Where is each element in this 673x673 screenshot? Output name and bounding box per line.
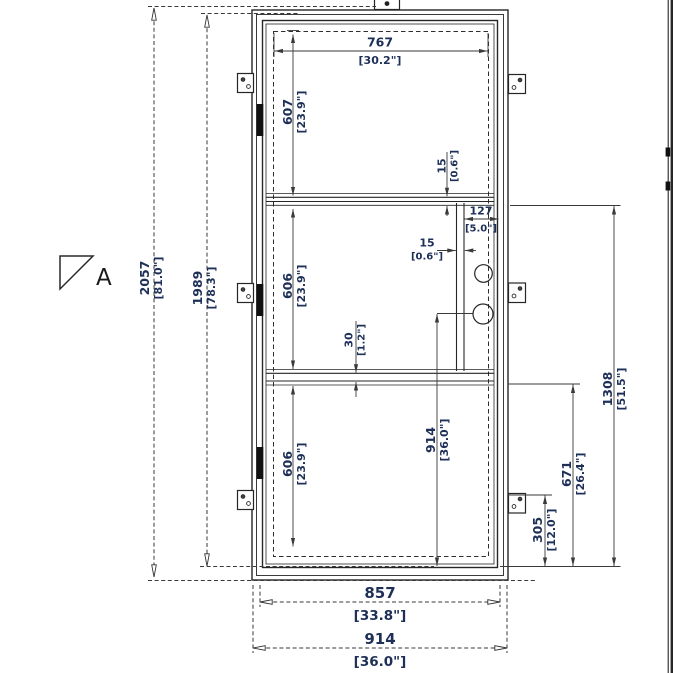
handle-zone-mm-label: 671 [559, 461, 574, 487]
dim-leaf-height: 1989 [78.3"] [190, 15, 218, 566]
glass-width-mm-label: 767 [367, 35, 393, 50]
anchor-plate-left-3 [238, 491, 254, 510]
dim-lock-channel-width: 15 [0.6"] [411, 237, 476, 263]
rail-top [266, 194, 494, 206]
hinge-bottom [257, 447, 264, 479]
middle-panel-mm-label: 606 [280, 273, 295, 299]
side-view-hinge-mark [666, 182, 671, 191]
lock-hole-bottom [473, 304, 493, 324]
anchor-plate-right-3 [509, 494, 526, 514]
bottom-panel-mm-label: 606 [280, 451, 295, 477]
lock-offset-mm-label: 127 [470, 205, 493, 218]
dim-handle-height: 914 [36.0"] [423, 314, 473, 567]
bottom-plate-in-label: [12.0"] [545, 509, 558, 552]
anchor-plate-top-center [375, 0, 400, 10]
dim-lock-stile-offset: 127 [5.0"] [465, 205, 499, 235]
hinge-top [257, 104, 264, 136]
leaf-height-in-label: [78.3"] [205, 267, 218, 310]
overall-width-in-label: [36.0"] [354, 654, 407, 670]
leaf-height-mm-label: 1989 [190, 271, 205, 306]
handle-zone-in-label: [26.4"] [574, 453, 587, 496]
rail-middle [266, 370, 494, 386]
door-elevation-drawing: 2057 [81.0"] 1989 [78.3"] 767 [30.2"] 60… [0, 0, 673, 673]
side-view-hinge-mark [666, 148, 671, 157]
lock-hole-top [475, 265, 493, 283]
dim-leaf-width: 857 [33.8"] [260, 584, 500, 624]
overall-height-mm-label: 2057 [137, 261, 152, 296]
dim-overall-height: 2057 [81.0"] [137, 8, 165, 577]
anchor-plates [238, 0, 526, 513]
lock-top-in-label: [51.5"] [615, 368, 628, 411]
lock-top-mm-label: 1308 [600, 372, 615, 407]
anchor-plate-right-1 [509, 75, 526, 94]
dim-bottom-panel-height: 606 [23.9"] [280, 386, 308, 547]
hinge-middle [257, 284, 264, 316]
top-rail-mm-label: 15 [436, 158, 449, 173]
dim-mid-rail-thickness: 30 [1.2"] [343, 321, 368, 397]
handle-height-in-label: [36.0"] [438, 419, 451, 462]
bottom-plate-mm-label: 305 [530, 517, 545, 543]
section-marker-a: A [60, 256, 112, 291]
bottom-panel-in-label: [23.9"] [295, 443, 308, 486]
top-rail-in-label: [0.6"] [450, 150, 461, 182]
dim-middle-panel-height: 606 [23.9"] [280, 209, 308, 369]
lock-channel [457, 203, 465, 371]
section-marker-label: A [96, 265, 112, 291]
glass-width-in-label: [30.2"] [359, 54, 402, 67]
top-panel-mm-label: 607 [280, 99, 295, 125]
lock-channel-in-label: [0.6"] [411, 252, 443, 263]
dim-glass-width: 767 [30.2"] [274, 33, 488, 67]
leaf-width-in-label: [33.8"] [354, 608, 407, 624]
handle-height-mm-label: 914 [423, 427, 438, 453]
mid-rail-in-label: [1.2"] [357, 324, 368, 356]
mid-rail-mm-label: 30 [343, 332, 356, 348]
dim-top-panel-height: 607 [23.9"] [280, 31, 308, 196]
side-view-edge [666, 0, 672, 673]
overall-height-in-label: [81.0"] [152, 257, 165, 300]
anchor-plate-left-1 [238, 74, 254, 93]
middle-panel-in-label: [23.9"] [295, 265, 308, 308]
top-panel-in-label: [23.9"] [295, 91, 308, 134]
dim-overall-width: 914 [36.0"] [253, 630, 507, 670]
overall-width-mm-label: 914 [364, 630, 395, 648]
anchor-plate-right-2 [509, 283, 526, 303]
handle-holes [473, 265, 493, 324]
lock-offset-in-label: [5.0"] [465, 224, 497, 235]
anchor-plate-left-2 [238, 284, 254, 303]
leaf-width-mm-label: 857 [364, 584, 395, 602]
lock-channel-mm-label: 15 [419, 237, 434, 250]
